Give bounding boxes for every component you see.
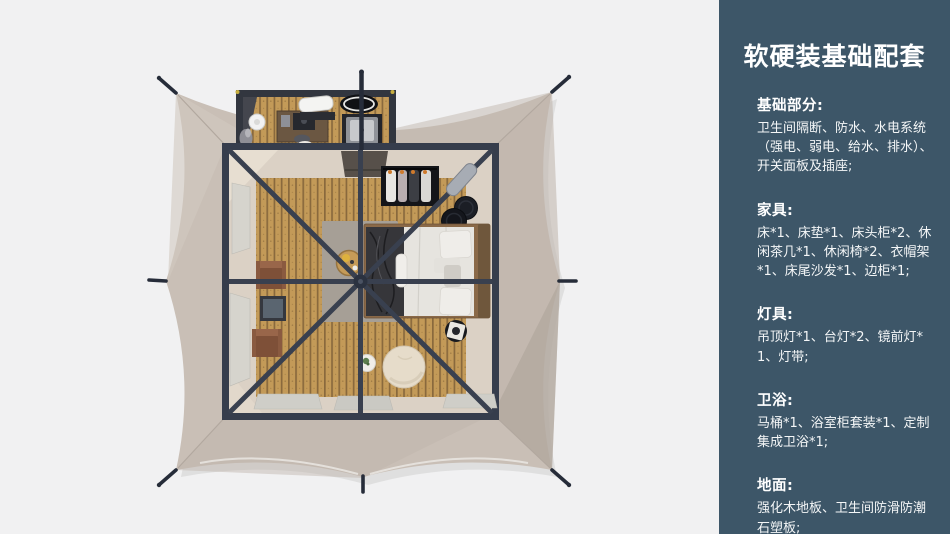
counter [300, 112, 335, 120]
main-room [222, 143, 499, 420]
ridge-beam [359, 70, 364, 151]
side-cabinet [341, 151, 388, 177]
section-body: 床*1、床垫*1、床头柜*2、休闲茶几*1、休闲椅*2、衣帽架*1、床尾沙发*1… [757, 224, 935, 282]
section-body: 吊顶灯*1、台灯*2、镜前灯*1、灯带; [757, 328, 935, 366]
lounge-chair [252, 329, 282, 357]
spec-sidebar: 软硬装基础配套 基础部分: 卫生间隔断、防水、水电系统（强电、弱电、给水、排水）… [719, 0, 950, 534]
sidebar-title: 软硬装基础配套 [719, 42, 950, 72]
section-heading: 灯具: [757, 303, 935, 324]
section-basics: 基础部分: 卫生间隔断、防水、水电系统（强电、弱电、给水、排水）、开关面板及插座… [757, 94, 935, 177]
section-body: 马桶*1、浴室柜套装*1、定制集成卫浴*1; [757, 414, 935, 452]
section-body: 强化木地板、卫生间防滑防潮石塑板; [757, 499, 935, 534]
clothes-rack [381, 166, 439, 206]
section-heading: 基础部分: [757, 94, 935, 115]
tray-side-table [445, 320, 467, 342]
section-lighting: 灯具: 吊顶灯*1、台灯*2、镜前灯*1、灯带; [757, 303, 935, 366]
section-heading: 家具: [757, 199, 935, 220]
round-sink [340, 95, 378, 114]
pouf [383, 346, 425, 388]
section-heading: 卫浴: [757, 389, 935, 410]
section-body: 卫生间隔断、防水、水电系统（强电、弱电、给水、排水）、开关面板及插座; [757, 119, 935, 177]
lounge-chair [256, 261, 286, 289]
tent-top-view-render [0, 0, 719, 534]
corner-hardware-dot [391, 90, 395, 94]
section-heading: 地面: [757, 474, 935, 495]
corner-hardware-dot [236, 90, 240, 94]
bathroom [236, 90, 397, 150]
page: 软硬装基础配套 基础部分: 卫生间隔断、防水、水电系统（强电、弱电、给水、排水）… [0, 0, 950, 534]
section-flooring: 地面: 强化木地板、卫生间防滑防潮石塑板; [757, 474, 935, 534]
chair-side-table [260, 296, 286, 321]
headboard [478, 224, 490, 318]
section-bathroom: 卫浴: 马桶*1、浴室柜套装*1、定制集成卫浴*1; [757, 389, 935, 452]
section-furniture: 家具: 床*1、床垫*1、床头柜*2、休闲茶几*1、休闲椅*2、衣帽架*1、床尾… [757, 199, 935, 282]
mirror [298, 95, 333, 112]
